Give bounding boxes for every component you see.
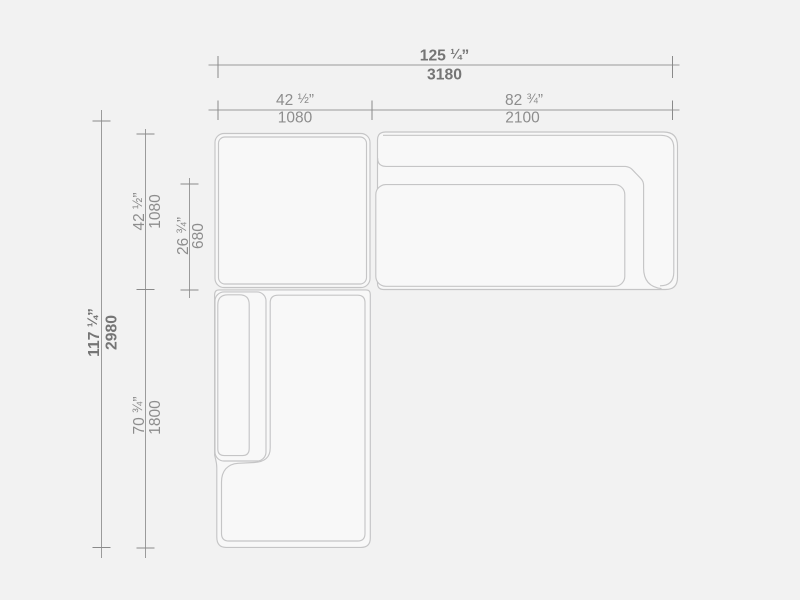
svg-text:1800: 1800 [147, 400, 164, 435]
svg-text:125 ¼”: 125 ¼” [420, 46, 470, 64]
svg-text:82 ¾”: 82 ¾” [505, 91, 543, 109]
svg-text:2980: 2980 [104, 315, 121, 350]
svg-text:680: 680 [190, 223, 207, 249]
svg-text:1080: 1080 [278, 109, 313, 126]
svg-text:2100: 2100 [505, 109, 540, 126]
svg-text:42 ½”: 42 ½” [276, 91, 314, 109]
svg-text:3180: 3180 [427, 67, 462, 84]
svg-text:70 ¾”: 70 ¾” [130, 397, 148, 435]
svg-text:42 ½”: 42 ½” [130, 193, 148, 231]
svg-text:1080: 1080 [147, 194, 164, 229]
svg-text:117 ¼”: 117 ¼” [85, 308, 103, 357]
